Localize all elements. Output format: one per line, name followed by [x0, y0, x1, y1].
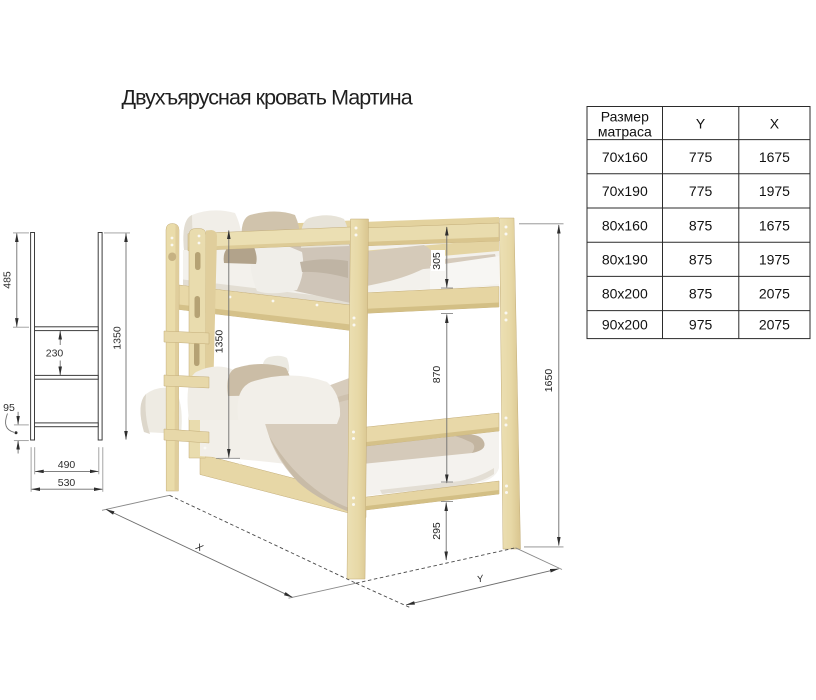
svg-text:1975: 1975 [759, 252, 790, 268]
svg-text:80x160: 80x160 [602, 217, 648, 233]
svg-text:1350: 1350 [111, 326, 123, 350]
svg-text:80x200: 80x200 [602, 286, 648, 302]
svg-text:490: 490 [58, 459, 76, 471]
svg-text:95: 95 [3, 402, 15, 414]
svg-text:80x190: 80x190 [602, 252, 648, 268]
svg-text:875: 875 [689, 286, 713, 302]
svg-text:530: 530 [58, 477, 76, 489]
svg-text:1675: 1675 [759, 217, 790, 233]
svg-text:90x200: 90x200 [602, 317, 648, 333]
svg-text:1975: 1975 [759, 183, 790, 199]
svg-text:775: 775 [689, 183, 713, 199]
svg-text:975: 975 [689, 317, 713, 333]
svg-text:875: 875 [689, 252, 713, 268]
svg-text:матраса: матраса [598, 124, 652, 140]
svg-text:X: X [193, 541, 205, 554]
svg-text:Y: Y [476, 573, 485, 585]
svg-text:305: 305 [431, 252, 443, 270]
svg-text:70x190: 70x190 [602, 183, 648, 199]
svg-text:Двухъярусная кровать Мартина: Двухъярусная кровать Мартина [122, 86, 413, 110]
svg-text:X: X [770, 116, 780, 132]
svg-text:295: 295 [431, 522, 443, 540]
svg-text:870: 870 [431, 366, 443, 384]
svg-text:875: 875 [689, 217, 713, 233]
svg-text:1675: 1675 [759, 149, 790, 165]
svg-text:775: 775 [689, 149, 713, 165]
svg-text:Y: Y [696, 116, 706, 132]
svg-text:1650: 1650 [543, 369, 555, 393]
svg-text:70x160: 70x160 [602, 149, 648, 165]
svg-text:230: 230 [46, 347, 64, 359]
svg-text:2075: 2075 [759, 317, 790, 333]
svg-text:485: 485 [2, 271, 14, 289]
svg-text:2075: 2075 [759, 286, 790, 302]
svg-text:1350: 1350 [214, 330, 226, 354]
svg-text:Размер: Размер [601, 109, 649, 125]
